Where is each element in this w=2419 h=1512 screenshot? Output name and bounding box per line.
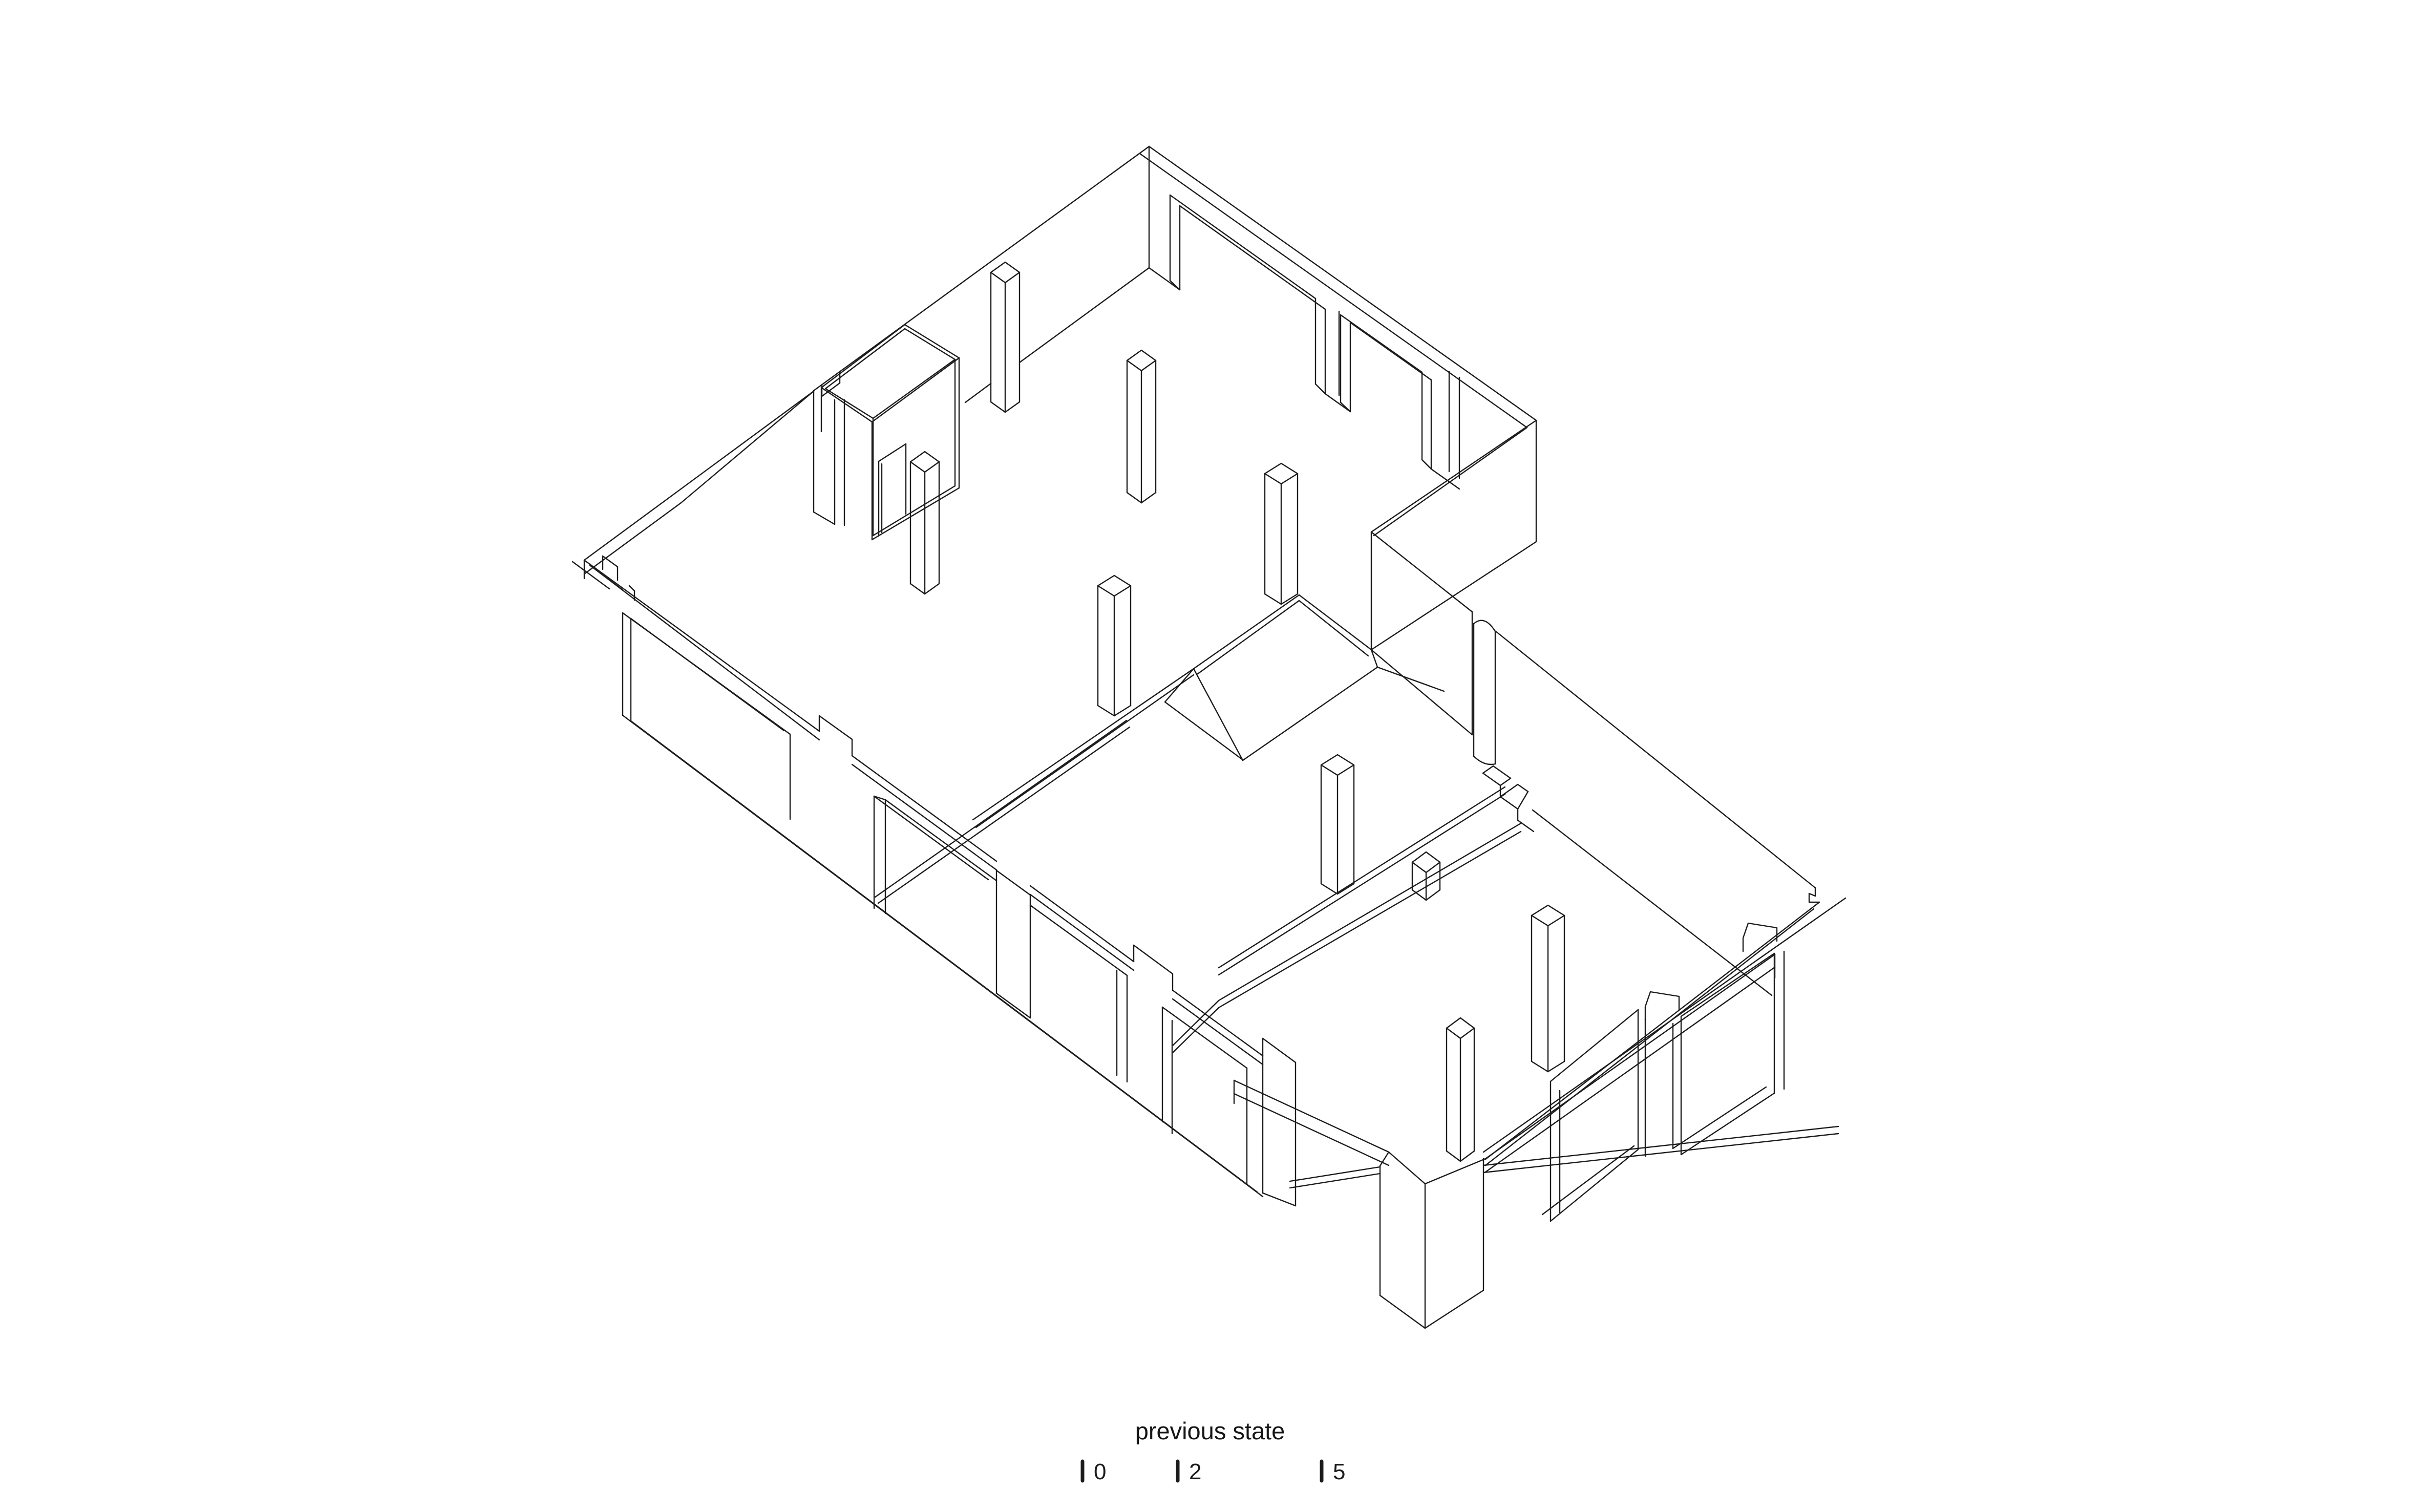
svg-text:2: 2 <box>1189 1459 1201 1484</box>
svg-text:0: 0 <box>1094 1459 1106 1484</box>
svg-text:previous state: previous state <box>1135 1417 1285 1444</box>
svg-text:5: 5 <box>1333 1459 1345 1484</box>
